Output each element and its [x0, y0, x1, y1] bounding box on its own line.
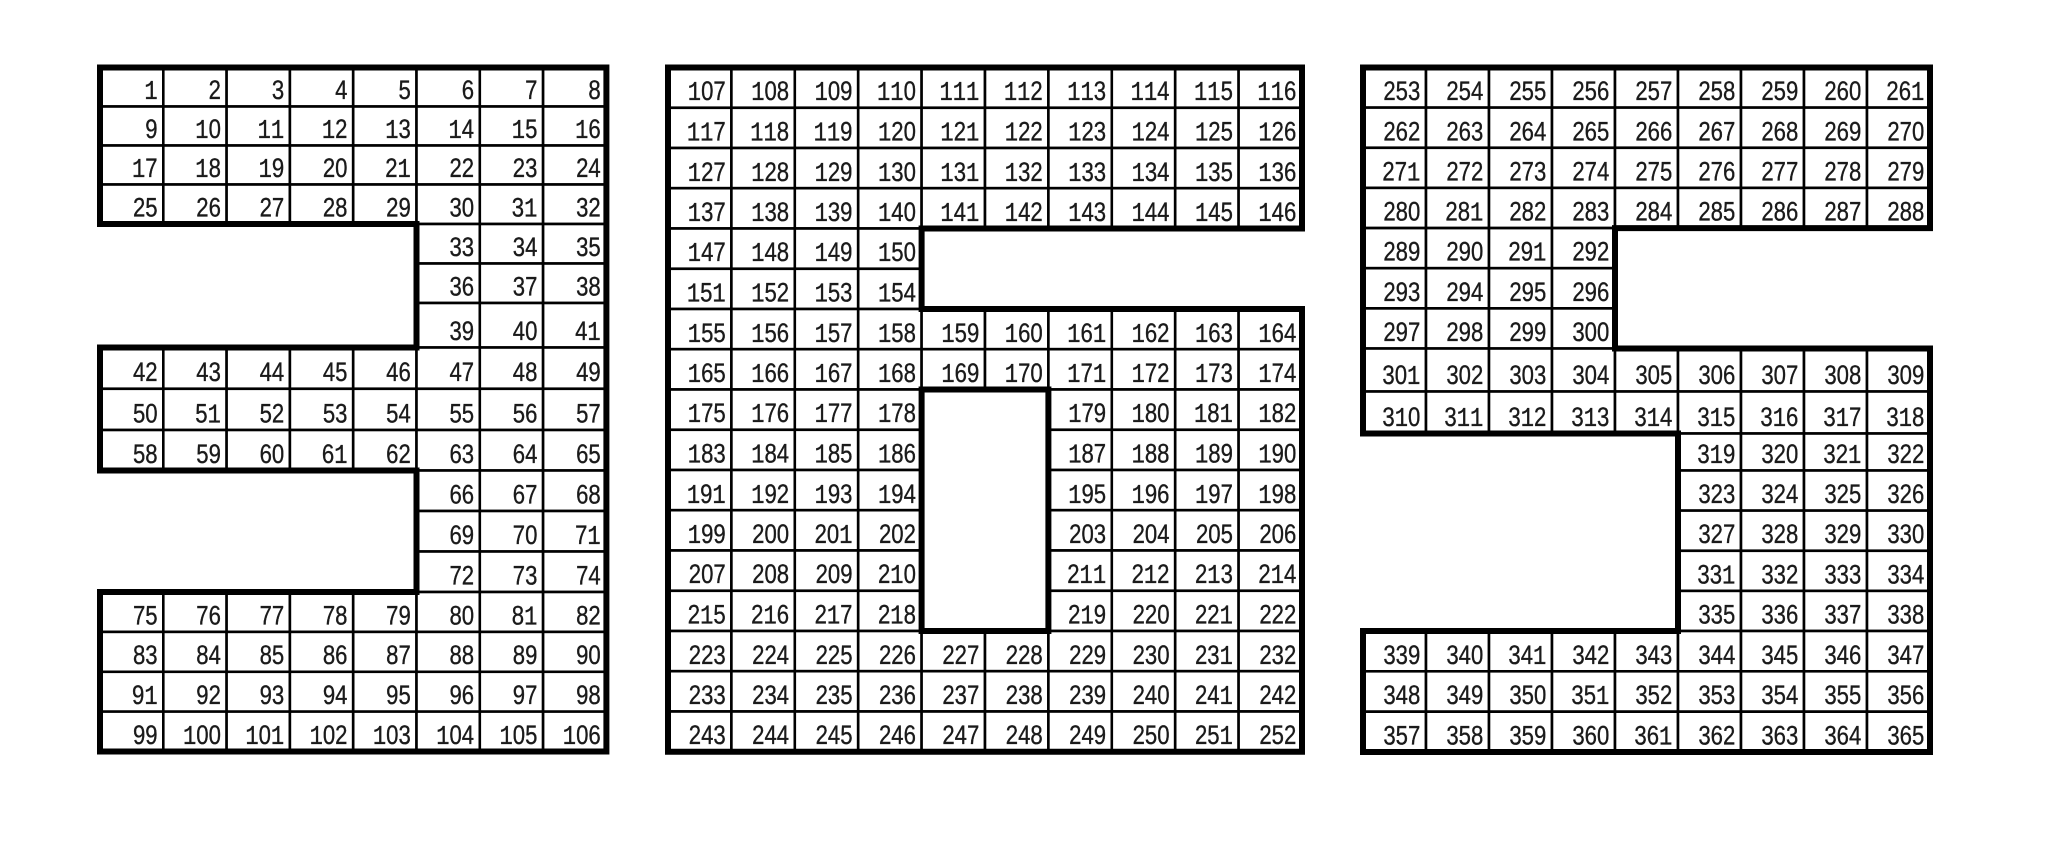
svg-text:110: 110 [877, 77, 916, 109]
svg-text:33: 33 [449, 233, 474, 263]
svg-text:311: 311 [1444, 403, 1483, 435]
svg-text:74: 74 [576, 562, 601, 592]
svg-text:297: 297 [1383, 318, 1420, 348]
svg-text:28: 28 [323, 194, 348, 224]
svg-text:260: 260 [1824, 77, 1861, 107]
svg-text:238: 238 [1006, 681, 1043, 711]
svg-text:138: 138 [751, 198, 789, 230]
svg-text:36: 36 [449, 273, 474, 303]
svg-text:258: 258 [1698, 77, 1735, 107]
svg-text:126: 126 [1258, 118, 1296, 150]
svg-text:319: 319 [1697, 440, 1735, 472]
svg-text:187: 187 [1068, 440, 1106, 472]
svg-text:332: 332 [1761, 560, 1798, 590]
svg-text:363: 363 [1761, 722, 1798, 752]
svg-text:9: 9 [145, 115, 157, 145]
svg-text:156: 156 [751, 319, 789, 351]
svg-text:39: 39 [449, 317, 474, 347]
svg-text:345: 345 [1761, 641, 1798, 671]
svg-text:196: 196 [1132, 480, 1170, 512]
svg-text:49: 49 [576, 358, 601, 388]
svg-text:242: 242 [1259, 681, 1296, 711]
svg-text:2: 2 [209, 76, 221, 106]
svg-text:178: 178 [878, 399, 916, 431]
svg-text:80: 80 [449, 601, 474, 631]
svg-text:122: 122 [1005, 118, 1043, 150]
svg-text:134: 134 [1132, 158, 1170, 190]
svg-text:109: 109 [815, 77, 853, 109]
svg-text:32: 32 [576, 194, 601, 224]
svg-text:198: 198 [1258, 480, 1296, 512]
svg-text:67: 67 [513, 481, 538, 511]
svg-text:3: 3 [272, 76, 284, 106]
svg-text:232: 232 [1259, 641, 1296, 671]
svg-text:226: 226 [879, 641, 916, 671]
svg-text:108: 108 [751, 77, 789, 109]
svg-text:276: 276 [1698, 157, 1735, 187]
svg-text:114: 114 [1131, 77, 1170, 109]
svg-text:5: 5 [398, 76, 410, 106]
svg-text:303: 303 [1509, 361, 1546, 391]
svg-text:148: 148 [751, 238, 789, 270]
svg-text:355: 355 [1824, 681, 1861, 711]
svg-text:289: 289 [1383, 238, 1420, 268]
svg-text:21: 21 [385, 154, 411, 186]
svg-text:119: 119 [814, 118, 853, 150]
svg-text:123: 123 [1068, 118, 1106, 150]
svg-text:40: 40 [513, 317, 538, 347]
svg-text:171: 171 [1067, 359, 1106, 391]
svg-text:154: 154 [878, 279, 916, 311]
svg-text:365: 365 [1887, 722, 1924, 752]
svg-text:265: 265 [1572, 117, 1609, 147]
svg-text:76: 76 [196, 601, 221, 631]
svg-text:24: 24 [576, 154, 601, 184]
svg-text:160: 160 [1005, 319, 1043, 351]
svg-text:29: 29 [386, 194, 411, 224]
svg-text:59: 59 [196, 440, 221, 470]
svg-text:52: 52 [260, 400, 285, 430]
svg-text:107: 107 [688, 77, 726, 109]
svg-text:195: 195 [1068, 480, 1106, 512]
svg-text:346: 346 [1824, 641, 1861, 671]
svg-text:264: 264 [1509, 117, 1546, 147]
svg-text:140: 140 [878, 198, 916, 230]
svg-text:295: 295 [1509, 278, 1546, 308]
svg-text:191: 191 [687, 480, 726, 512]
svg-text:70: 70 [513, 521, 538, 551]
svg-text:294: 294 [1446, 278, 1483, 308]
svg-text:331: 331 [1697, 560, 1735, 592]
svg-text:90: 90 [576, 641, 601, 671]
svg-text:41: 41 [575, 317, 601, 349]
svg-text:63: 63 [449, 440, 474, 470]
svg-text:306: 306 [1698, 361, 1735, 391]
svg-text:155: 155 [688, 319, 726, 351]
svg-text:203: 203 [1069, 520, 1106, 550]
svg-text:137: 137 [688, 198, 726, 230]
svg-text:145: 145 [1195, 198, 1233, 230]
svg-text:197: 197 [1195, 480, 1233, 512]
svg-text:362: 362 [1698, 722, 1735, 752]
svg-text:129: 129 [815, 158, 853, 190]
svg-text:347: 347 [1887, 641, 1924, 671]
svg-text:152: 152 [751, 279, 789, 311]
svg-text:82: 82 [576, 601, 601, 631]
svg-text:364: 364 [1824, 722, 1861, 752]
svg-text:6: 6 [462, 76, 474, 106]
svg-text:139: 139 [815, 198, 853, 230]
svg-text:42: 42 [133, 358, 158, 388]
svg-text:12: 12 [322, 115, 348, 147]
svg-text:102: 102 [310, 721, 348, 753]
svg-text:310: 310 [1382, 403, 1420, 435]
svg-text:45: 45 [323, 358, 348, 388]
svg-text:182: 182 [1258, 399, 1296, 431]
svg-text:81: 81 [512, 601, 538, 633]
svg-text:304: 304 [1572, 361, 1609, 391]
svg-text:127: 127 [688, 158, 726, 190]
svg-text:54: 54 [386, 400, 411, 430]
svg-text:273: 273 [1509, 157, 1546, 187]
svg-text:27: 27 [260, 194, 285, 224]
svg-text:117: 117 [687, 118, 726, 150]
svg-text:26: 26 [196, 194, 221, 224]
svg-text:176: 176 [751, 399, 789, 431]
svg-text:305: 305 [1635, 361, 1672, 391]
svg-text:57: 57 [576, 400, 601, 430]
svg-text:83: 83 [133, 641, 158, 671]
svg-text:17: 17 [132, 154, 158, 186]
svg-text:251: 251 [1195, 721, 1233, 753]
svg-text:199: 199 [688, 520, 726, 552]
svg-text:333: 333 [1824, 560, 1861, 590]
svg-text:101: 101 [245, 721, 284, 753]
svg-text:100: 100 [183, 721, 221, 753]
svg-text:143: 143 [1068, 198, 1106, 230]
svg-text:8: 8 [588, 76, 600, 106]
svg-text:105: 105 [499, 721, 537, 753]
svg-text:341: 341 [1508, 641, 1546, 673]
svg-text:298: 298 [1446, 318, 1483, 348]
svg-text:334: 334 [1887, 560, 1924, 590]
svg-text:317: 317 [1823, 403, 1861, 435]
svg-text:179: 179 [1068, 399, 1106, 431]
svg-text:181: 181 [1194, 399, 1233, 431]
svg-text:277: 277 [1761, 157, 1798, 187]
svg-text:247: 247 [942, 721, 979, 751]
svg-text:205: 205 [1196, 520, 1233, 550]
svg-text:268: 268 [1761, 117, 1798, 147]
svg-text:48: 48 [513, 358, 538, 388]
svg-text:14: 14 [449, 115, 475, 147]
svg-text:312: 312 [1508, 403, 1546, 435]
svg-text:75: 75 [133, 601, 158, 631]
svg-text:50: 50 [133, 400, 158, 430]
svg-text:206: 206 [1259, 520, 1296, 550]
svg-text:299: 299 [1509, 318, 1546, 348]
svg-text:361: 361 [1634, 722, 1672, 754]
svg-text:256: 256 [1572, 77, 1609, 107]
svg-text:349: 349 [1446, 681, 1483, 711]
svg-text:285: 285 [1698, 198, 1735, 228]
svg-text:192: 192 [751, 480, 789, 512]
svg-text:327: 327 [1698, 520, 1735, 550]
svg-text:30: 30 [449, 194, 474, 224]
svg-text:348: 348 [1383, 681, 1420, 711]
svg-text:326: 326 [1887, 480, 1924, 510]
svg-text:325: 325 [1824, 480, 1861, 510]
svg-text:353: 353 [1698, 681, 1735, 711]
svg-text:118: 118 [750, 118, 789, 150]
svg-text:221: 221 [1195, 601, 1233, 633]
svg-text:98: 98 [576, 681, 601, 711]
svg-text:328: 328 [1761, 520, 1798, 550]
svg-text:321: 321 [1823, 440, 1861, 472]
svg-text:218: 218 [878, 601, 916, 633]
svg-text:144: 144 [1132, 198, 1170, 230]
svg-text:323: 323 [1698, 480, 1735, 510]
svg-text:130: 130 [878, 158, 916, 190]
svg-text:343: 343 [1635, 641, 1672, 671]
svg-text:87: 87 [386, 641, 411, 671]
svg-text:177: 177 [815, 399, 853, 431]
svg-text:233: 233 [689, 681, 726, 711]
svg-text:73: 73 [513, 562, 538, 592]
svg-text:23: 23 [513, 154, 538, 184]
svg-text:175: 175 [688, 399, 726, 431]
svg-text:44: 44 [260, 358, 285, 388]
svg-text:272: 272 [1446, 157, 1483, 187]
svg-text:208: 208 [752, 560, 789, 590]
svg-text:351: 351 [1571, 681, 1609, 713]
svg-text:124: 124 [1132, 118, 1170, 150]
svg-text:344: 344 [1698, 641, 1735, 671]
svg-text:236: 236 [879, 681, 916, 711]
svg-text:194: 194 [878, 480, 916, 512]
svg-text:214: 214 [1258, 560, 1296, 592]
svg-text:210: 210 [878, 560, 916, 592]
svg-text:189: 189 [1195, 440, 1233, 472]
svg-text:234: 234 [752, 681, 789, 711]
svg-text:318: 318 [1886, 403, 1924, 435]
svg-text:275: 275 [1635, 157, 1672, 187]
svg-text:228: 228 [1006, 641, 1043, 671]
svg-text:4: 4 [335, 76, 347, 106]
svg-text:217: 217 [815, 601, 853, 633]
svg-text:235: 235 [816, 681, 853, 711]
svg-text:116: 116 [1257, 77, 1296, 109]
svg-text:46: 46 [386, 358, 411, 388]
svg-text:354: 354 [1761, 681, 1798, 711]
svg-text:51: 51 [195, 400, 221, 432]
svg-text:358: 358 [1446, 722, 1483, 752]
svg-text:336: 336 [1761, 601, 1798, 631]
svg-text:360: 360 [1572, 722, 1609, 752]
svg-text:34: 34 [513, 233, 538, 263]
svg-text:15: 15 [512, 115, 538, 147]
svg-text:18: 18 [195, 154, 221, 186]
svg-text:43: 43 [196, 358, 221, 388]
svg-text:64: 64 [513, 440, 538, 470]
svg-text:112: 112 [1004, 77, 1043, 109]
svg-text:204: 204 [1133, 520, 1170, 550]
svg-text:263: 263 [1446, 117, 1483, 147]
svg-text:230: 230 [1133, 641, 1170, 671]
svg-text:115: 115 [1194, 77, 1233, 109]
svg-text:190: 190 [1258, 440, 1296, 472]
svg-text:68: 68 [576, 481, 601, 511]
svg-text:104: 104 [436, 721, 474, 753]
svg-text:231: 231 [1195, 641, 1233, 673]
svg-text:279: 279 [1887, 157, 1924, 187]
svg-text:248: 248 [1006, 721, 1043, 751]
svg-text:136: 136 [1258, 158, 1296, 190]
svg-text:125: 125 [1195, 118, 1233, 150]
svg-text:147: 147 [688, 238, 726, 270]
svg-text:65: 65 [576, 440, 601, 470]
svg-text:282: 282 [1509, 198, 1546, 228]
svg-text:85: 85 [260, 641, 285, 671]
svg-text:322: 322 [1887, 440, 1924, 470]
svg-text:7: 7 [525, 76, 537, 106]
svg-text:324: 324 [1761, 480, 1798, 510]
svg-text:89: 89 [513, 641, 538, 671]
svg-text:185: 185 [815, 440, 853, 472]
svg-text:169: 169 [941, 359, 979, 391]
svg-text:350: 350 [1509, 681, 1546, 711]
svg-text:215: 215 [688, 601, 726, 633]
svg-text:227: 227 [942, 641, 979, 671]
svg-text:149: 149 [815, 238, 853, 270]
svg-text:259: 259 [1761, 77, 1798, 107]
svg-text:300: 300 [1572, 318, 1609, 348]
svg-text:135: 135 [1195, 158, 1233, 190]
svg-text:193: 193 [815, 480, 853, 512]
svg-text:239: 239 [1069, 681, 1106, 711]
svg-text:213: 213 [1195, 560, 1233, 592]
svg-text:340: 340 [1446, 641, 1483, 671]
svg-text:111: 111 [939, 78, 979, 109]
svg-text:252: 252 [1259, 721, 1296, 751]
svg-text:96: 96 [449, 681, 474, 711]
svg-text:131: 131 [940, 158, 979, 190]
svg-text:103: 103 [373, 721, 411, 753]
svg-text:286: 286 [1761, 198, 1798, 228]
svg-text:281: 281 [1445, 198, 1483, 230]
svg-text:224: 224 [752, 641, 789, 671]
svg-text:314: 314 [1634, 403, 1672, 435]
svg-text:128: 128 [751, 158, 789, 190]
svg-text:167: 167 [815, 359, 853, 391]
svg-text:78: 78 [323, 601, 348, 631]
svg-text:184: 184 [751, 440, 789, 472]
svg-text:166: 166 [751, 359, 789, 391]
svg-text:267: 267 [1698, 117, 1735, 147]
svg-text:219: 219 [1068, 601, 1106, 633]
svg-text:158: 158 [878, 319, 916, 351]
svg-text:60: 60 [260, 440, 285, 470]
svg-text:183: 183 [688, 440, 726, 472]
svg-text:62: 62 [386, 440, 411, 470]
svg-text:66: 66 [449, 481, 474, 511]
svg-text:212: 212 [1132, 560, 1170, 592]
svg-text:254: 254 [1446, 77, 1483, 107]
svg-text:246: 246 [879, 721, 916, 751]
svg-text:53: 53 [323, 400, 348, 430]
svg-text:69: 69 [449, 521, 474, 551]
svg-text:146: 146 [1258, 198, 1296, 230]
svg-text:10: 10 [195, 115, 221, 147]
svg-text:313: 313 [1571, 403, 1609, 435]
svg-text:209: 209 [816, 560, 853, 590]
svg-text:253: 253 [1383, 77, 1420, 107]
svg-text:356: 356 [1887, 681, 1924, 711]
svg-text:338: 338 [1887, 601, 1924, 631]
svg-text:309: 309 [1887, 361, 1924, 391]
svg-text:292: 292 [1572, 238, 1609, 268]
svg-text:56: 56 [513, 400, 538, 430]
svg-text:271: 271 [1382, 157, 1420, 189]
svg-text:296: 296 [1572, 278, 1609, 308]
svg-text:335: 335 [1698, 601, 1735, 631]
svg-text:337: 337 [1824, 601, 1861, 631]
svg-text:35: 35 [576, 233, 601, 263]
svg-text:120: 120 [878, 118, 916, 150]
svg-text:37: 37 [513, 273, 538, 303]
svg-text:95: 95 [386, 681, 411, 711]
svg-text:93: 93 [260, 681, 285, 711]
svg-text:250: 250 [1133, 721, 1170, 751]
svg-text:163: 163 [1195, 319, 1233, 351]
svg-text:72: 72 [449, 562, 474, 592]
svg-text:170: 170 [1005, 359, 1043, 391]
svg-text:22: 22 [449, 154, 474, 184]
svg-text:151: 151 [687, 279, 726, 311]
svg-text:19: 19 [259, 154, 285, 186]
svg-text:1: 1 [144, 77, 157, 108]
svg-text:88: 88 [449, 641, 474, 671]
svg-text:202: 202 [879, 520, 916, 550]
svg-text:359: 359 [1509, 722, 1546, 752]
svg-text:162: 162 [1132, 319, 1170, 351]
svg-text:180: 180 [1132, 399, 1170, 431]
svg-text:99: 99 [133, 721, 158, 751]
svg-text:222: 222 [1259, 601, 1296, 631]
svg-text:172: 172 [1132, 359, 1170, 391]
svg-text:79: 79 [386, 601, 411, 631]
svg-text:106: 106 [563, 721, 601, 753]
svg-text:164: 164 [1258, 319, 1296, 351]
svg-text:61: 61 [322, 440, 348, 472]
svg-text:133: 133 [1068, 158, 1106, 190]
svg-text:201: 201 [815, 520, 853, 552]
svg-text:16: 16 [575, 115, 601, 147]
svg-text:225: 225 [816, 641, 853, 671]
svg-text:244: 244 [752, 721, 789, 751]
svg-text:157: 157 [815, 319, 853, 351]
svg-text:237: 237 [942, 681, 979, 711]
svg-text:288: 288 [1887, 198, 1924, 228]
svg-text:174: 174 [1258, 359, 1296, 391]
svg-text:262: 262 [1383, 117, 1420, 147]
svg-text:55: 55 [449, 400, 474, 430]
svg-text:270: 270 [1887, 117, 1924, 147]
svg-text:200: 200 [752, 520, 789, 550]
svg-text:307: 307 [1761, 361, 1798, 391]
svg-text:186: 186 [878, 440, 916, 472]
svg-text:25: 25 [133, 194, 158, 224]
